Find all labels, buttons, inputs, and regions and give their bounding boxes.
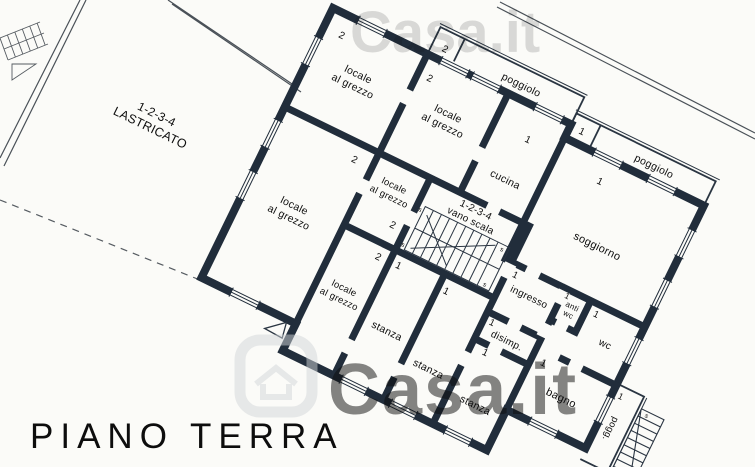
unit-number: 2 <box>388 219 398 232</box>
unit-number: 1 <box>577 126 587 139</box>
terrace-west-edge-double-line <box>0 0 86 166</box>
scanned-floorplan-page: 1-2-3-4 LASTRICATO s s <box>0 0 755 467</box>
terrace-south-dashed-line <box>0 200 205 282</box>
window <box>236 169 258 200</box>
terrace-north-edge-double-line <box>168 0 301 92</box>
room-label-stanza-a: stanza <box>369 319 404 344</box>
floorplan-canvas: 1-2-3-4 LASTRICATO s s <box>0 0 755 467</box>
window <box>650 278 672 309</box>
unit-number: 2 <box>373 251 383 264</box>
terrace-wedge-marker <box>12 64 36 80</box>
window <box>470 71 501 93</box>
window <box>646 174 677 196</box>
terrace-stair-hatch <box>0 22 48 80</box>
room-label-ingresso: ingresso <box>508 284 549 312</box>
plan-title: PIANO TERRA <box>30 417 344 456</box>
window <box>229 288 260 310</box>
room-label-wc: wc <box>596 337 613 353</box>
watermark-fragment-top: Casa.it <box>350 0 540 65</box>
unit-number: 1 <box>393 260 403 273</box>
unit-number: 2 <box>425 73 435 86</box>
hatch-edges <box>0 22 48 60</box>
unit-number: 1 <box>616 391 625 402</box>
window <box>592 148 623 170</box>
window <box>622 336 643 366</box>
watermark-house-icon-glyph <box>256 368 296 397</box>
stair-step-mark: s <box>499 246 506 254</box>
unit-number: 1 <box>441 286 451 299</box>
room-label-cucina: cucina <box>488 167 522 192</box>
unit-number: 1 <box>487 317 497 329</box>
window <box>533 102 564 124</box>
window <box>261 118 283 149</box>
unit-number: 1 <box>523 134 533 147</box>
window <box>674 228 696 259</box>
unit-number: 2 <box>336 30 346 43</box>
unit-number: 2 <box>349 154 359 167</box>
watermark-text: Casa.it <box>328 350 578 430</box>
unit-number: 1 <box>591 309 601 321</box>
lastricato-label: 1-2-3-4 LASTRICATO <box>111 91 196 152</box>
unit-number: 1 <box>595 176 605 189</box>
watermark-house-icon <box>240 340 312 412</box>
room-label-soggiorno: soggiorno <box>571 230 622 263</box>
window <box>301 35 323 66</box>
